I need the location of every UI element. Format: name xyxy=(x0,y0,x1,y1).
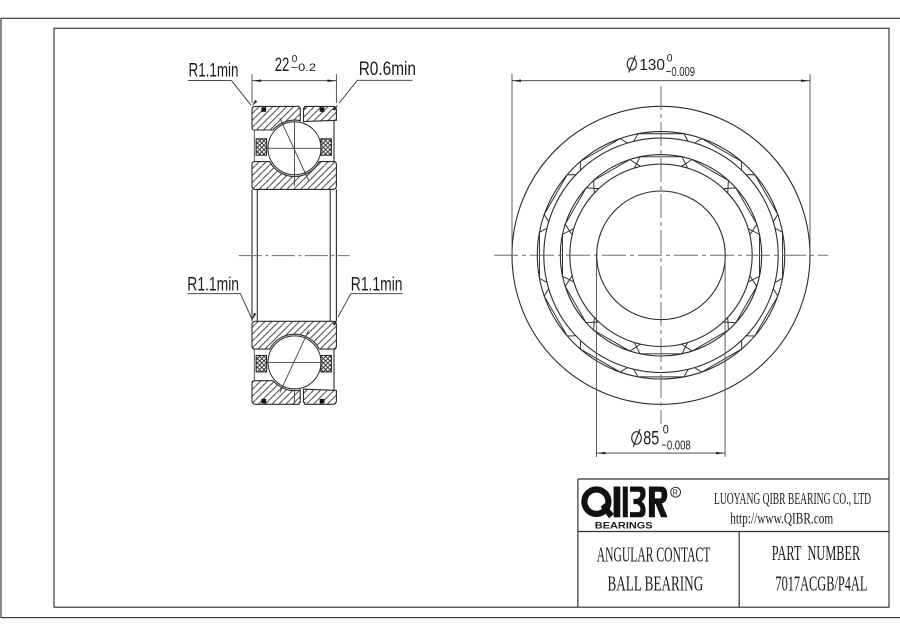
svg-text:−0.2: −0.2 xyxy=(291,62,316,74)
svg-text:7017ACGB/P4AL: 7017ACGB/P4AL xyxy=(775,572,867,596)
svg-text:ANGULAR CONTACT: ANGULAR CONTACT xyxy=(597,543,711,567)
svg-text:−0.009: −0.009 xyxy=(666,64,695,79)
svg-text:130: 130 xyxy=(639,57,665,74)
svg-text:BALL BEARING: BALL BEARING xyxy=(608,572,704,596)
svg-text:0: 0 xyxy=(663,422,669,436)
svg-text:http://www.QIBR.com: http://www.QIBR.com xyxy=(730,511,833,528)
svg-text:R1.1min: R1.1min xyxy=(351,274,403,295)
svg-text:−0.008: −0.008 xyxy=(661,437,690,452)
svg-text:R1.1min: R1.1min xyxy=(189,61,239,82)
svg-text:22: 22 xyxy=(275,55,290,76)
svg-text:0: 0 xyxy=(667,53,673,65)
svg-text:R0.6min: R0.6min xyxy=(359,59,416,80)
svg-text:LUOYANG QIBR BEARING CO., LTD: LUOYANG QIBR BEARING CO., LTD xyxy=(714,489,871,508)
svg-text:PART NUMBER: PART NUMBER xyxy=(772,541,861,565)
svg-text:R1.1min: R1.1min xyxy=(187,274,239,295)
svg-text:R: R xyxy=(673,488,678,497)
svg-text:BEARINGS: BEARINGS xyxy=(595,521,653,532)
svg-text:85: 85 xyxy=(643,429,659,450)
